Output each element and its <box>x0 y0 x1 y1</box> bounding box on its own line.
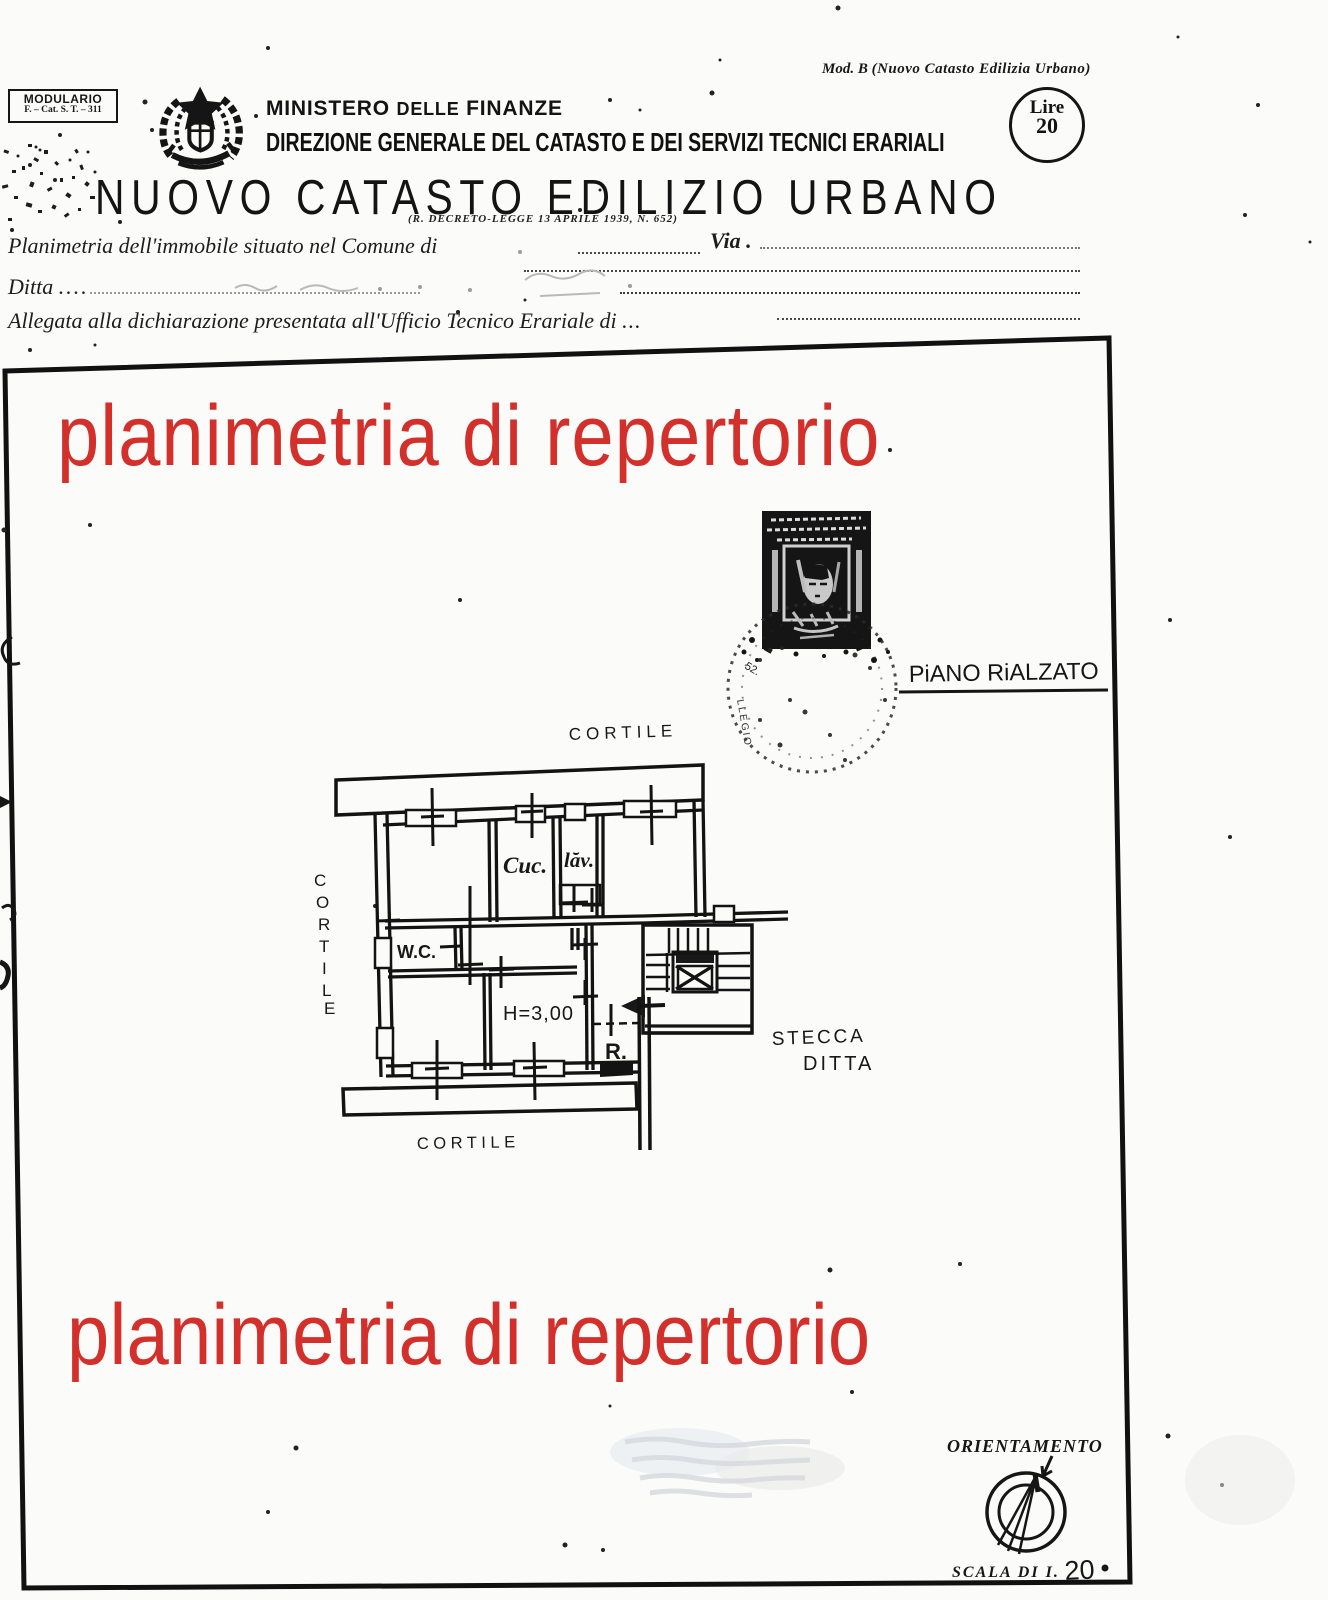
svg-text:52.: 52. <box>743 660 762 678</box>
svg-text:CORTILE: CORTILE <box>417 1133 520 1153</box>
svg-text:W.C.: W.C. <box>397 942 436 962</box>
svg-text:lăv.: lăv. <box>564 848 594 872</box>
svg-text:STECCA: STECCA <box>771 1026 866 1050</box>
svg-text:E: E <box>324 999 335 1018</box>
svg-text:R.: R. <box>605 1039 627 1064</box>
svg-text:DITTA: DITTA <box>803 1053 874 1075</box>
svg-text:R: R <box>318 915 330 934</box>
svg-text:ORIENTAMENTO: ORIENTAMENTO <box>947 1436 1103 1456</box>
svg-text:PiANO RiALZATO: PiANO RiALZATO <box>909 658 1099 687</box>
svg-text:SCALA DI I.: SCALA DI I. <box>952 1564 1060 1581</box>
svg-text:I: I <box>322 959 327 978</box>
svg-text:20: 20 <box>1064 1554 1096 1586</box>
svg-text:T: T <box>319 937 329 956</box>
svg-text:L: L <box>322 981 331 1000</box>
svg-text:C: C <box>314 871 326 890</box>
svg-text:Cuc.: Cuc. <box>503 853 547 878</box>
svg-text:H=3,00: H=3,00 <box>503 1003 574 1025</box>
svg-text:O: O <box>316 893 329 912</box>
svg-text:CORTILE: CORTILE <box>568 721 677 744</box>
